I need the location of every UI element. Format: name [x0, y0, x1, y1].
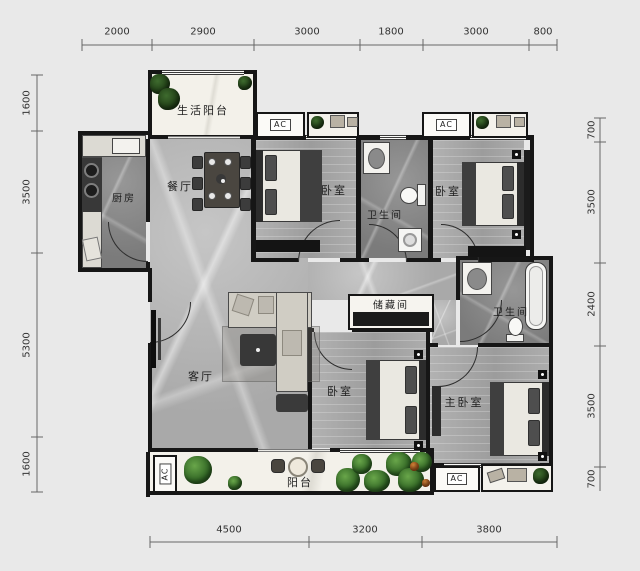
- room-label-living: 客厅: [188, 368, 214, 384]
- wall: [253, 258, 298, 262]
- bed-pillow: [405, 366, 417, 394]
- dim-top-0: 2000: [104, 27, 129, 38]
- wall: [148, 448, 258, 452]
- ac-platform-balcony-left: AC: [153, 455, 177, 493]
- burner-icon: [84, 183, 99, 198]
- wall: [78, 268, 152, 272]
- ledge-pillow: [507, 468, 527, 482]
- dim-top-2: 3000: [294, 27, 319, 38]
- nightstand: [538, 452, 547, 461]
- tv-unit: [151, 310, 156, 368]
- room-label-dining: 餐厅: [167, 178, 193, 194]
- room-label-master-bedroom: 主卧室: [445, 394, 484, 410]
- decor-box: [514, 117, 525, 127]
- dim-left-0: 1600: [22, 90, 33, 115]
- sink-basin: [467, 268, 487, 290]
- wall: [428, 139, 433, 262]
- ac-platform-top-right: AC: [422, 112, 471, 138]
- room-label-balcony: 阳台: [287, 474, 313, 490]
- dim-top-5: 800: [533, 27, 552, 38]
- bed-headboard: [419, 360, 426, 440]
- dim-left-2: 5300: [22, 332, 33, 357]
- room-label-bedroom-top-left: 卧室: [321, 182, 347, 198]
- kitchen-sink: [112, 138, 140, 154]
- bed-headboard: [517, 162, 524, 226]
- wall: [478, 343, 553, 347]
- nightstand: [538, 370, 547, 379]
- dim-top-3: 1800: [378, 27, 403, 38]
- room-label-bathroom-top: 卫生间: [367, 207, 403, 222]
- sofa-cushion: [258, 296, 274, 314]
- dim-top-4: 3000: [463, 27, 488, 38]
- decor-box: [347, 117, 358, 127]
- bed-headboard: [256, 150, 263, 222]
- dining-chair: [240, 198, 251, 211]
- sliding-door: [258, 449, 330, 452]
- sink-basin: [368, 148, 385, 169]
- bed-pillow: [405, 406, 417, 434]
- coffee-table: [240, 334, 276, 366]
- wall: [456, 260, 460, 300]
- bottom-ruler: [150, 536, 557, 548]
- dim-top-1: 2900: [190, 27, 215, 38]
- window: [162, 70, 244, 75]
- dim-left-1: 3500: [22, 179, 33, 204]
- bed-pillow: [528, 388, 540, 414]
- dim-right-1: 3500: [587, 189, 598, 214]
- dim-bottom-0: 4500: [216, 525, 241, 536]
- dining-chair: [240, 156, 251, 169]
- dining-chair: [192, 156, 203, 169]
- bed-blanket: [300, 150, 322, 222]
- burner-icon: [84, 163, 99, 178]
- wall: [340, 258, 369, 262]
- bed-pillow: [502, 194, 514, 219]
- wall: [146, 262, 150, 272]
- ac-label: AC: [447, 473, 468, 485]
- wall: [146, 491, 434, 495]
- nightstand: [414, 350, 423, 359]
- dining-chair: [192, 198, 203, 211]
- balcony-chair: [311, 459, 325, 473]
- wall: [146, 139, 150, 222]
- ac-platform-top-left: AC: [256, 112, 305, 138]
- window: [380, 135, 406, 140]
- room-label-storage: 储藏间: [373, 297, 409, 312]
- hallway-branch: [432, 300, 456, 345]
- washing-machine: [398, 228, 422, 252]
- dim-left-3: 1600: [22, 451, 33, 476]
- decor-box: [330, 115, 345, 128]
- plate-icon: [208, 158, 216, 166]
- bed-pillow: [528, 420, 540, 446]
- tv-cabinet: [256, 240, 320, 252]
- ac-platform-bottom-right: AC: [434, 466, 480, 492]
- toilet-bowl: [400, 187, 418, 204]
- bed-headboard: [542, 382, 549, 456]
- nightstand: [414, 441, 423, 450]
- wall: [148, 272, 152, 302]
- room-label-life-balcony: 生活阳台: [177, 102, 229, 118]
- sofa-cushion: [282, 330, 302, 356]
- bed-pillow: [265, 189, 277, 215]
- dim-right-0: 700: [587, 120, 598, 139]
- plate-icon: [224, 158, 232, 166]
- bed-pillow: [502, 166, 514, 191]
- plate-icon: [224, 192, 232, 200]
- wall: [549, 256, 553, 467]
- balcony-chair: [271, 459, 285, 473]
- dim-bottom-2: 3800: [476, 525, 501, 536]
- dresser: [432, 386, 441, 436]
- window: [340, 448, 420, 453]
- dim-right-3: 3500: [587, 393, 598, 418]
- left-ruler: [31, 75, 43, 492]
- dining-chair: [192, 177, 203, 190]
- dim-right-2: 2400: [587, 291, 598, 316]
- plate-icon: [208, 192, 216, 200]
- dim-right-4: 700: [587, 469, 598, 488]
- nightstand: [512, 150, 521, 159]
- room-label-bedroom-bottom: 卧室: [327, 383, 353, 399]
- sliding-door: [168, 136, 240, 139]
- bed-blanket: [490, 382, 504, 456]
- bed-pillow: [265, 155, 277, 181]
- centerpiece: [216, 174, 226, 184]
- side-table: [276, 394, 308, 412]
- bed-blanket: [366, 360, 380, 440]
- bed-blanket: [462, 162, 476, 226]
- wall: [426, 328, 430, 467]
- dining-chair: [240, 177, 251, 190]
- bathtub: [525, 262, 547, 330]
- floor-plan: 2000 2900 3000 1800 3000 800 4500 3200 3…: [0, 0, 640, 571]
- toilet-tank: [417, 184, 426, 206]
- nightstand: [512, 230, 521, 239]
- top-ruler: [82, 39, 557, 51]
- storage-wardrobe: [353, 312, 429, 326]
- wall: [530, 139, 534, 262]
- tv-cabinet: [468, 246, 526, 257]
- ac-label: AC: [270, 119, 291, 131]
- wall: [356, 139, 361, 262]
- toilet-bowl: [508, 317, 523, 336]
- ac-label: AC: [436, 119, 457, 131]
- room-label-bathroom-right: 卫生间: [493, 304, 529, 319]
- wall: [407, 258, 441, 262]
- wardrobe: [524, 150, 530, 250]
- room-label-bedroom-top-right: 卧室: [435, 183, 461, 199]
- ac-label: AC: [159, 464, 171, 485]
- dim-bottom-1: 3200: [352, 525, 377, 536]
- room-label-kitchen: 厨房: [112, 190, 136, 205]
- decor-box: [496, 115, 511, 128]
- tv-console: [158, 318, 161, 360]
